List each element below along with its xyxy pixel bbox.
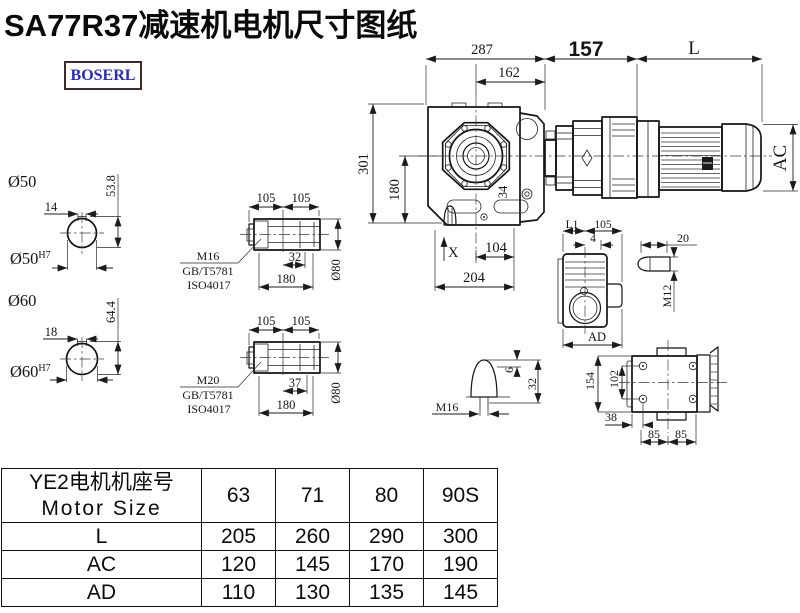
label-X: X: [448, 245, 459, 261]
cell-L-90S: 300: [424, 523, 498, 551]
table-row-AD: AD 110 130 135 145: [2, 579, 498, 607]
hs1-dim-105a: 105: [257, 191, 276, 205]
dim-162: 162: [498, 65, 520, 81]
col-80: 80: [350, 469, 424, 523]
sv-dim-AD: AD: [588, 330, 606, 344]
hs2-standard2: ISO4017: [187, 402, 230, 416]
col-63: 63: [202, 469, 276, 523]
hollow-shaft-bottom: 105 105 37 180 Ø80 M20 GB/T5781 ISO4017: [180, 314, 343, 416]
kd-dim-20: 20: [677, 231, 689, 245]
hs1-standard2: ISO4017: [187, 278, 230, 292]
col-90S: 90S: [424, 469, 498, 523]
bore50-value: Ø50: [10, 249, 38, 268]
sv-dim-4: 4: [590, 233, 596, 245]
header-motor-size-en: Motor Size: [2, 496, 201, 521]
hs2-dim-105a: 105: [257, 314, 276, 328]
bore60-label: Ø60H7: [10, 362, 51, 381]
cell-AC-90S: 190: [424, 551, 498, 579]
bore60-value: Ø60: [10, 362, 38, 381]
dim-34: 34: [496, 185, 510, 198]
rv-dim-38: 38: [605, 410, 617, 424]
cell-L-80: 290: [350, 523, 424, 551]
dim-104: 104: [485, 240, 508, 256]
bore50-tolerance: H7: [38, 250, 50, 261]
cell-AD-90S: 145: [424, 579, 498, 607]
rv-dim-85a: 85: [648, 427, 660, 441]
key-detail: 20 M12: [638, 231, 697, 312]
section60-label: Ø60: [8, 291, 36, 310]
cell-AD-80: 135: [350, 579, 424, 607]
foot-slot-right: [494, 200, 528, 213]
sv-dim-105: 105: [594, 219, 612, 231]
cell-AD-71: 130: [276, 579, 350, 607]
row-label-AD: AD: [2, 579, 202, 607]
section50-label: Ø50: [8, 172, 36, 191]
dim-301: 301: [356, 153, 372, 175]
row-label-AC: AC: [2, 551, 202, 579]
dim-287: 287: [471, 42, 493, 58]
bore60-tolerance: H7: [38, 363, 50, 374]
dim-180-left: 180: [387, 179, 403, 201]
plug-thread: M16: [436, 400, 459, 414]
plug-detail: 6 32 M16: [432, 352, 541, 416]
kd-thread: M12: [660, 285, 674, 308]
cell-L-63: 205: [202, 523, 276, 551]
table-row-AC: AC 120 145 170 190: [2, 551, 498, 579]
bore50-label: Ø50H7: [10, 249, 51, 268]
main-view-dimensions: 287 162 157 L AC 301 180 104 204: [356, 38, 798, 291]
hs2-thread: M20: [197, 373, 220, 387]
hs1-dim-180: 180: [277, 272, 296, 286]
dim-53.8: 53.8: [104, 175, 118, 197]
hs1-standard1: GB/T5781: [182, 264, 233, 278]
motor-side-view: [637, 121, 761, 197]
dim-L: L: [688, 38, 700, 59]
cell-L-71: 260: [276, 523, 350, 551]
adapter-housing: [545, 117, 637, 198]
hs1-thread: M16: [197, 249, 220, 263]
drain-plug-dome: [444, 206, 456, 225]
drawing-page: SA77R37减速机电机尺寸图纸 BOSERL: [0, 0, 800, 613]
plug-dim-6: 6: [502, 367, 516, 373]
motor-dimension-table: YE2电机机座号 Motor Size 63 71 80 90S L 205 2…: [1, 468, 498, 607]
gearbox-side-view: L1 105 4 AD: [558, 219, 622, 348]
hollow-shaft-top: 105 105 32 180 Ø80 M16 GB/T5781 ISO4017: [180, 191, 343, 292]
table-header-row: YE2电机机座号 Motor Size 63 71 80 90S: [2, 469, 498, 523]
dim-204: 204: [463, 270, 486, 286]
cell-AC-63: 120: [202, 551, 276, 579]
motor-mount-view: 154 102 38 85 85: [583, 340, 727, 445]
hs1-dim-105b: 105: [292, 191, 311, 205]
cell-AD-63: 110: [202, 579, 276, 607]
hs2-standard1: GB/T5781: [182, 388, 233, 402]
dim-AC: AC: [770, 145, 791, 171]
table-row-L: L 205 260 290 300: [2, 523, 498, 551]
motor-nameplate: [702, 157, 713, 170]
shaft-section-50: Ø50 14 53.8 Ø50H7: [8, 172, 121, 270]
header-motor-size: YE2电机机座号 Motor Size: [2, 469, 202, 523]
plug-dim-32: 32: [525, 378, 539, 390]
technical-drawing: 287 162 157 L AC 301 180 104 204: [0, 0, 800, 468]
hs2-dim-105b: 105: [292, 314, 311, 328]
dim-64.4: 64.4: [104, 300, 118, 323]
hs2-dim-180: 180: [277, 398, 296, 412]
hs2-dim-37: 37: [289, 376, 302, 390]
gearbox-flange-plate: [520, 113, 544, 222]
cell-AC-80: 170: [350, 551, 424, 579]
balance-mark: [582, 150, 592, 166]
cell-AC-71: 145: [276, 551, 350, 579]
dim-157: 157: [568, 38, 603, 61]
hs2-dim-d80: Ø80: [329, 382, 343, 404]
dim-18: 18: [45, 325, 58, 339]
sv-dim-L1: L1: [566, 219, 579, 231]
shaft-section-60: Ø60 18 64.4 Ø60H7: [8, 291, 121, 382]
hs1-dim-32: 32: [289, 250, 302, 264]
header-motor-size-cn: YE2电机机座号: [2, 470, 201, 496]
col-71: 71: [276, 469, 350, 523]
hs1-dim-d80: Ø80: [329, 259, 343, 281]
rv-dim-85b: 85: [675, 427, 687, 441]
motor-fan-cover: [722, 124, 761, 191]
rv-dim-154: 154: [583, 372, 597, 390]
rv-dim-102: 102: [607, 370, 621, 388]
dim-14: 14: [45, 200, 58, 214]
row-label-L: L: [2, 523, 202, 551]
